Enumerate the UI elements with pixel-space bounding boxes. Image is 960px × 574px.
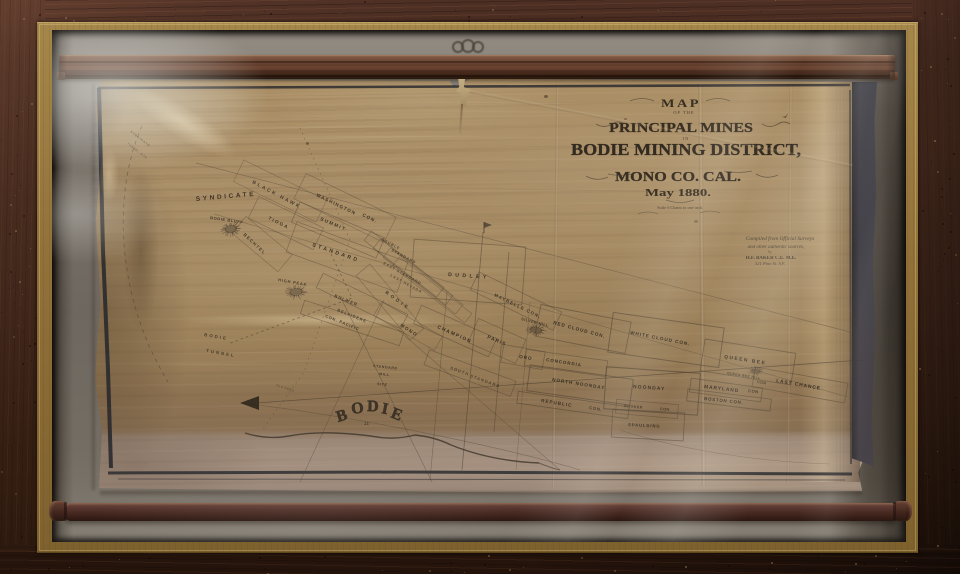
svg-text:TIOGA: TIOGA xyxy=(268,215,290,230)
svg-text:DOUBLE: DOUBLE xyxy=(381,237,401,250)
svg-text:CON.: CON. xyxy=(362,212,379,224)
svg-text:B: B xyxy=(334,406,349,425)
svg-text:PARIS: PARIS xyxy=(486,334,507,347)
svg-text:CON: CON xyxy=(748,388,759,394)
svg-text:May 1880.: May 1880. xyxy=(645,187,711,199)
svg-text:BULWER: BULWER xyxy=(334,293,359,307)
svg-text:MAYBELLE CON.: MAYBELLE CON. xyxy=(494,292,543,319)
svg-text:MONO CO. CAL.: MONO CO. CAL. xyxy=(615,169,741,184)
svg-text:I: I xyxy=(380,400,389,418)
svg-text:NOONDAY: NOONDAY xyxy=(633,384,666,392)
svg-text:TUNNEL: TUNNEL xyxy=(206,348,236,358)
svg-text:OF THE: OF THE xyxy=(673,110,694,115)
svg-text:OLD ROAD: OLD ROAD xyxy=(276,383,296,393)
svg-text:RED CLOUD CON.: RED CLOUD CON. xyxy=(553,320,607,339)
svg-text:Compiled from Official Surveys: Compiled from Official Surveys xyxy=(746,235,814,242)
svg-text:MAP: MAP xyxy=(661,98,701,110)
svg-text:SPAULDING: SPAULDING xyxy=(628,422,661,429)
svg-text:DUDLEY: DUDLEY xyxy=(448,272,490,281)
svg-text:BODIE: BODIE xyxy=(204,332,228,341)
svg-text:21: 21 xyxy=(364,422,370,427)
svg-text:SYNDICATE: SYNDICATE xyxy=(196,191,257,203)
svg-text:D: D xyxy=(367,398,379,415)
svg-text:Scale 6 Chains to one inch.: Scale 6 Chains to one inch. xyxy=(657,205,703,210)
svg-text:QUEEN BEE: QUEEN BEE xyxy=(724,354,767,367)
svg-text:BODIE: BODIE xyxy=(384,290,411,311)
svg-text:BOOKER: BOOKER xyxy=(624,404,643,410)
svg-text:CONCORDIA: CONCORDIA xyxy=(546,357,582,368)
svg-text:REPUBLIC: REPUBLIC xyxy=(541,398,573,408)
svg-text:HIGH PEAK: HIGH PEAK xyxy=(278,277,308,287)
svg-text:CON.: CON. xyxy=(589,405,603,412)
svg-text:WHITE CLOUD CON.: WHITE CLOUD CON. xyxy=(630,330,691,347)
svg-text:by: by xyxy=(768,250,772,254)
svg-text:and other authentic sources,: and other authentic sources, xyxy=(748,245,805,250)
svg-text:O: O xyxy=(350,399,365,418)
svg-text:CON: CON xyxy=(660,407,670,412)
svg-text:STANDARD: STANDARD xyxy=(311,242,360,264)
svg-text:CON: CON xyxy=(757,380,767,385)
svg-text:BODIE BLUFF: BODIE BLUFF xyxy=(210,215,244,225)
svg-text:LAST CHANCE: LAST CHANCE xyxy=(776,378,822,392)
svg-text:SITE: SITE xyxy=(377,382,388,387)
svg-text:ORO: ORO xyxy=(519,354,533,361)
svg-text:MILL: MILL xyxy=(379,372,390,377)
svg-text:321 Pine St. S.F.: 321 Pine St. S.F. xyxy=(755,261,785,266)
